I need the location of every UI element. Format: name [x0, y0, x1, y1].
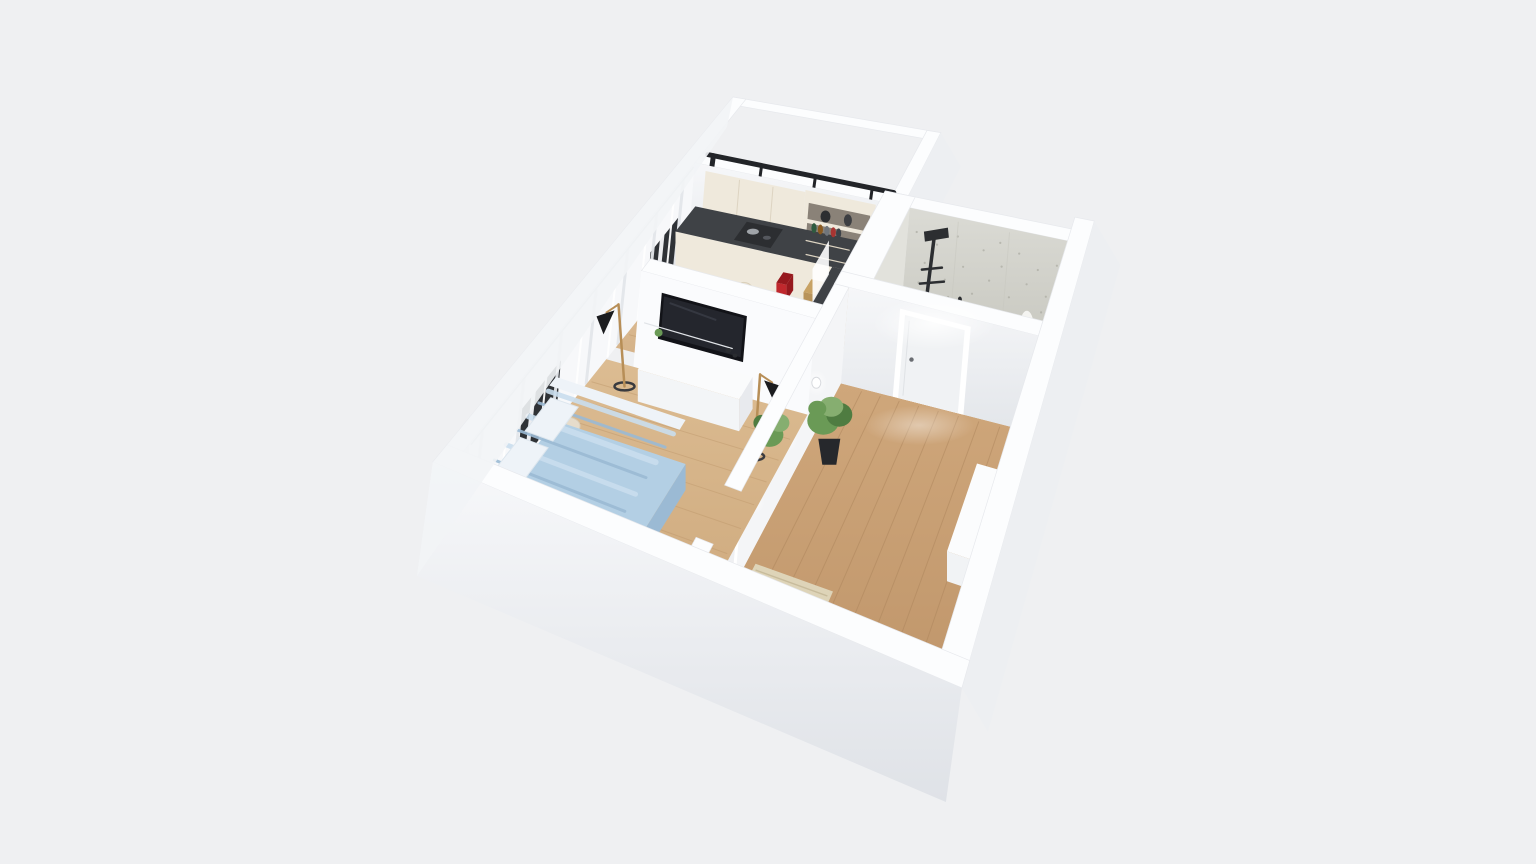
spice-bottle	[836, 228, 841, 238]
render-canvas	[0, 0, 1536, 864]
shelf-item-dark	[821, 211, 831, 223]
console-decor-dark	[733, 354, 738, 358]
spice-bottle	[818, 225, 823, 235]
plant-foliage	[808, 401, 826, 417]
spice-bottle	[811, 223, 816, 233]
shelf-item-dark	[844, 214, 852, 226]
concrete-speckle	[1045, 296, 1047, 298]
ceiling-light-glow	[864, 405, 974, 445]
door-handle	[909, 357, 913, 361]
concrete-speckle	[1026, 283, 1028, 285]
concrete-speckle	[962, 266, 964, 268]
cooktop-burner	[763, 236, 771, 240]
concrete-speckle	[1008, 296, 1010, 298]
concrete-speckle	[1001, 266, 1003, 268]
concrete-speckle	[999, 242, 1001, 244]
console-decor-plant	[655, 329, 663, 337]
floorplan-3d-render	[0, 0, 1536, 864]
concrete-speckle	[936, 244, 938, 246]
concrete-speckle	[988, 280, 990, 282]
concrete-speckle	[971, 293, 973, 295]
concrete-speckle	[916, 231, 918, 233]
spice-bottle	[824, 226, 829, 236]
concrete-speckle	[1040, 311, 1042, 313]
ceiling-light-glow	[872, 298, 996, 350]
concrete-speckle	[924, 262, 926, 264]
pot	[747, 229, 759, 235]
concrete-speckle	[1037, 269, 1039, 271]
spice-bottle	[831, 227, 836, 237]
console-decor-dark	[725, 348, 731, 353]
concrete-speckle	[983, 249, 985, 251]
concrete-speckle	[1056, 265, 1058, 267]
concrete-speckle	[1018, 253, 1020, 255]
sconce-shade	[812, 377, 821, 388]
